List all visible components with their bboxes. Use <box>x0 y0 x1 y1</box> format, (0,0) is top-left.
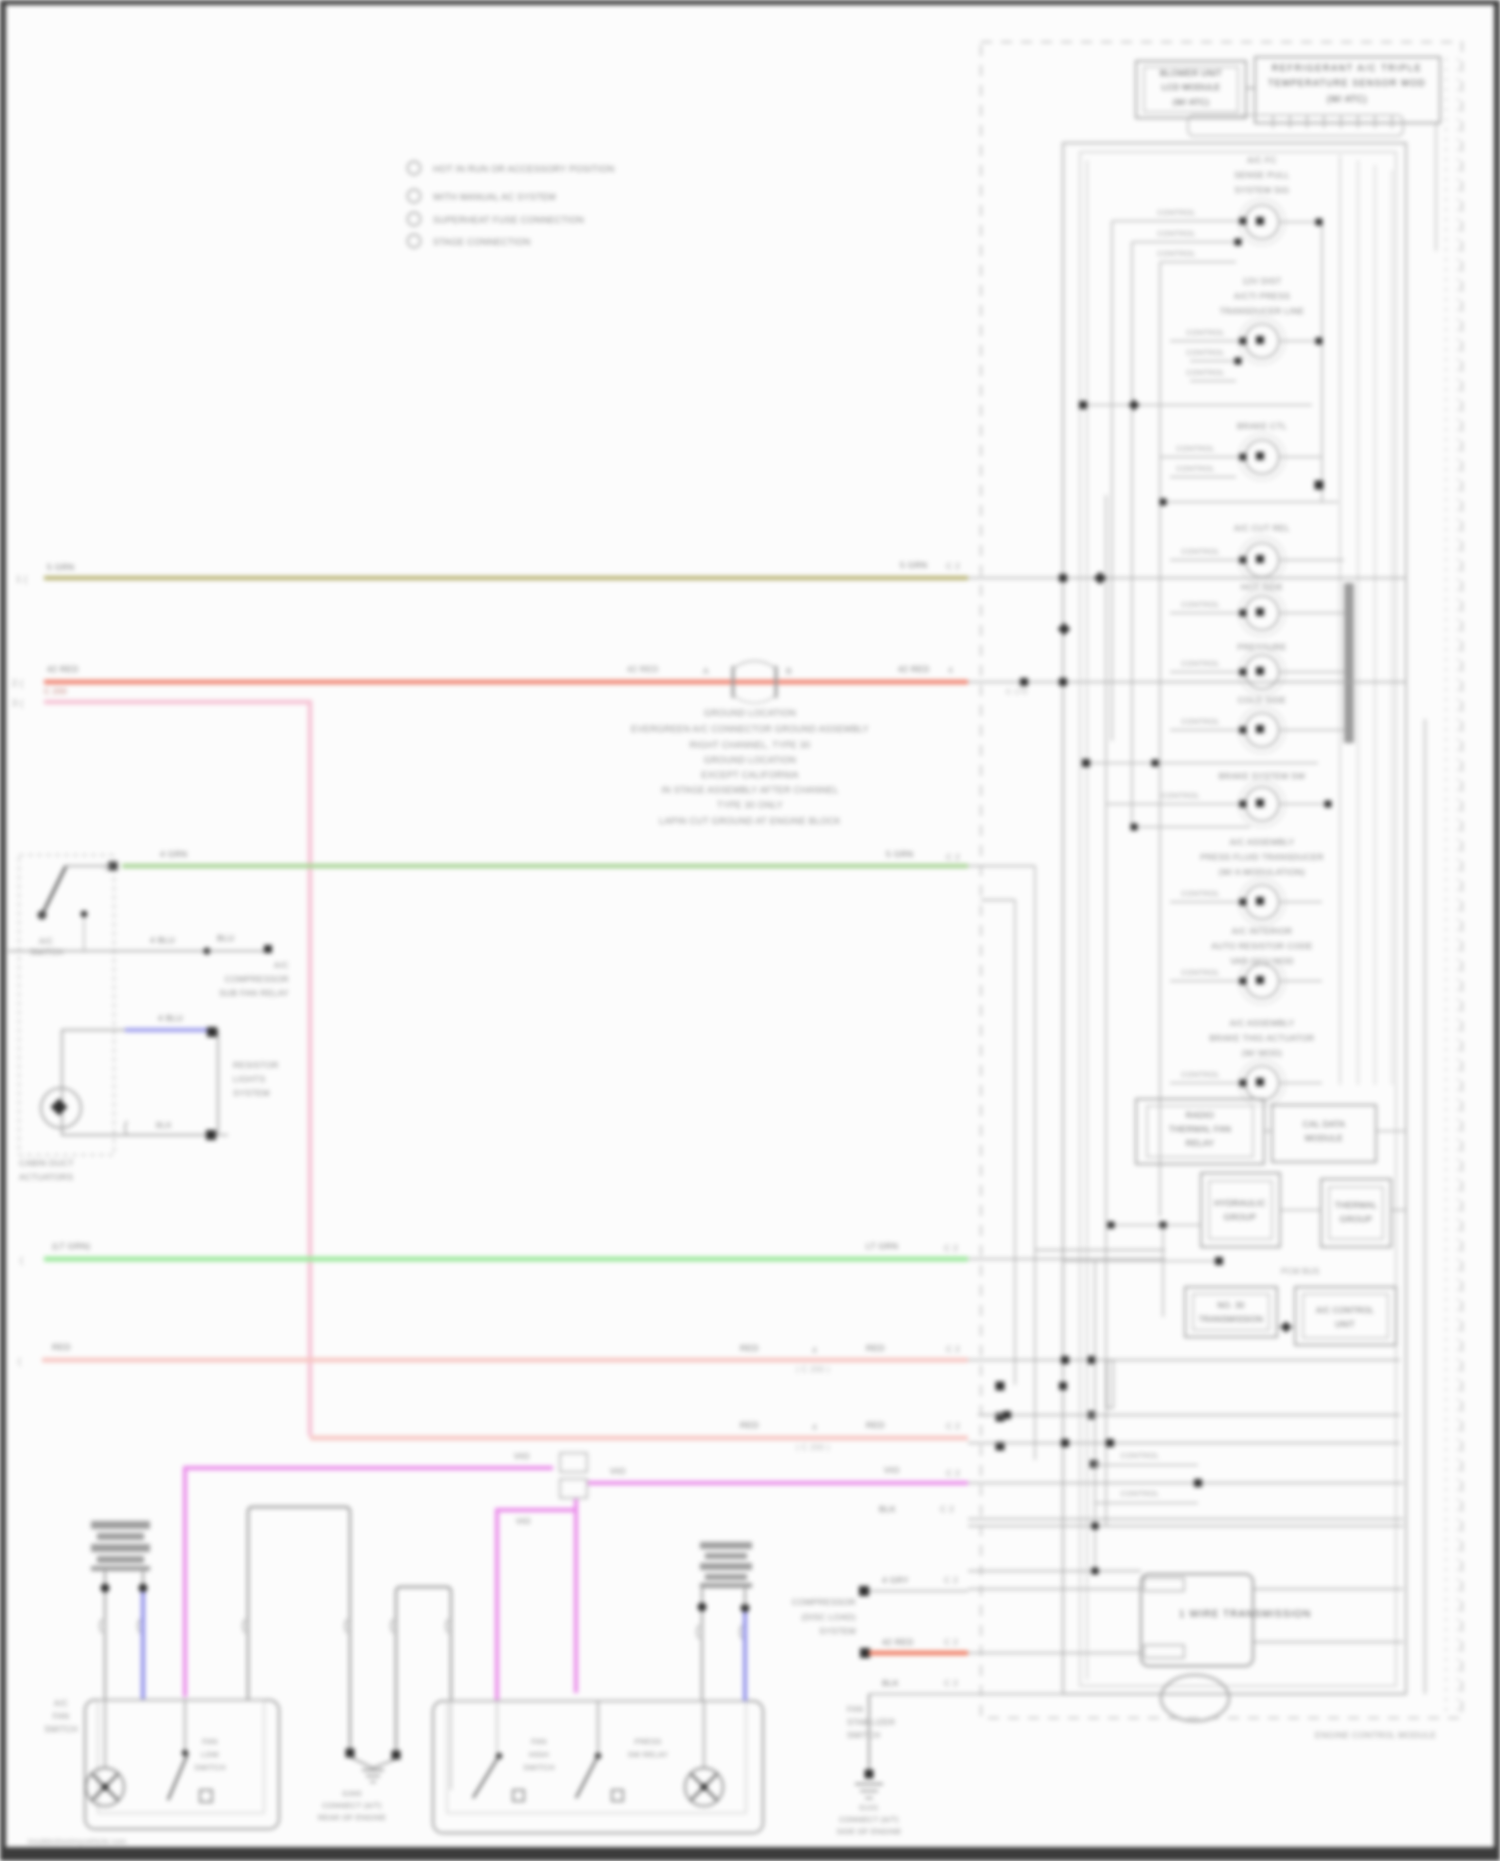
svg-text:2 (: 2 ( <box>12 678 23 688</box>
svg-text:PRESSURE: PRESSURE <box>1237 642 1286 652</box>
svg-text:RIGHT CHANNEL, TYPE 30: RIGHT CHANNEL, TYPE 30 <box>690 740 811 750</box>
svg-text:SWITCH: SWITCH <box>194 1763 225 1772</box>
svg-text:CONTROL: CONTROL <box>1157 249 1196 258</box>
svg-text:4: 4 <box>948 665 953 675</box>
svg-text:PRESS FLUID TRANSDUCER: PRESS FLUID TRANSDUCER <box>1200 852 1324 862</box>
svg-text:SWITCH: SWITCH <box>523 1763 554 1772</box>
svg-text:SW RELAY: SW RELAY <box>628 1750 669 1759</box>
svg-text:FAN: FAN <box>847 1705 863 1714</box>
svg-text:STABILIZER: STABILIZER <box>847 1718 895 1727</box>
svg-text:FAN: FAN <box>202 1737 218 1746</box>
svg-text:REFRIGERANT A/C TRIPLE: REFRIGERANT A/C TRIPLE <box>1272 63 1422 73</box>
svg-text:CONTROL: CONTROL <box>1181 547 1220 556</box>
svg-text:CONTROL: CONTROL <box>1176 444 1215 453</box>
svg-text:A: A <box>703 666 709 676</box>
svg-text:BLK: BLK <box>879 1504 896 1514</box>
svg-text:A/C: A/C <box>274 960 289 970</box>
svg-text:RED: RED <box>740 1343 759 1353</box>
svg-text:C 200: C 200 <box>44 687 67 696</box>
svg-text:(W/ A MODULATION): (W/ A MODULATION) <box>1219 867 1306 877</box>
svg-text:42 RED: 42 RED <box>882 1637 914 1647</box>
svg-text:RELAY: RELAY <box>1186 1138 1215 1148</box>
svg-text:CONTROL: CONTROL <box>1181 600 1220 609</box>
svg-text:LAPIN CUT GROUND AT ENGINE BLO: LAPIN CUT GROUND AT ENGINE BLOCK <box>659 816 841 826</box>
svg-text:BRAKE SYSTEM SW: BRAKE SYSTEM SW <box>1219 771 1306 781</box>
svg-text:C 2: C 2 <box>940 1504 954 1514</box>
svg-text:5 GRN: 5 GRN <box>47 562 74 572</box>
svg-text:4: 4 <box>812 1345 817 1355</box>
svg-text:CONTROL: CONTROL <box>1161 791 1200 800</box>
svg-text:C 2: C 2 <box>944 1575 958 1585</box>
svg-text:RADIO: RADIO <box>1186 1110 1215 1120</box>
svg-text:SIDE OF ENGINE: SIDE OF ENGINE <box>836 1827 901 1836</box>
svg-text:RESISTOR: RESISTOR <box>233 1060 279 1070</box>
svg-text:CONTROL: CONTROL <box>1176 464 1215 473</box>
svg-text:UNIT: UNIT <box>1335 1320 1355 1329</box>
svg-text:G101: G101 <box>859 1803 879 1812</box>
svg-text:GROUND LOCATION: GROUND LOCATION <box>704 755 796 765</box>
svg-text:TYPE 30 ONLY: TYPE 30 ONLY <box>717 800 783 810</box>
svg-text:BRAKE THIG ACTUATOR: BRAKE THIG ACTUATOR <box>1210 1033 1315 1043</box>
svg-text:A/C INTERIOR: A/C INTERIOR <box>1232 926 1293 936</box>
svg-text:(DISC LOAD): (DISC LOAD) <box>801 1612 856 1622</box>
svg-text:RED: RED <box>740 1420 759 1430</box>
svg-text:42 RED: 42 RED <box>627 664 659 674</box>
svg-text:C 2: C 2 <box>946 852 960 862</box>
svg-text:SWITCH: SWITCH <box>847 1731 880 1740</box>
svg-text:C 2: C 2 <box>944 1637 958 1647</box>
svg-text:A/C ASSEMBLY: A/C ASSEMBLY <box>1230 1018 1295 1028</box>
svg-text:VIO: VIO <box>516 1517 531 1526</box>
svg-text:A/C: A/C <box>39 937 53 946</box>
svg-text:CAL DATA: CAL DATA <box>1303 1119 1345 1129</box>
svg-text:RED: RED <box>866 1343 885 1353</box>
svg-text:LT GRN: LT GRN <box>866 1241 898 1251</box>
svg-text:CONTROL: CONTROL <box>1186 348 1225 357</box>
svg-text:CONTROL: CONTROL <box>1186 368 1225 377</box>
svg-text:CONTROL: CONTROL <box>1181 889 1220 898</box>
svg-text:ACTUATORS: ACTUATORS <box>19 1172 73 1182</box>
svg-text:C 2: C 2 <box>946 1344 960 1354</box>
svg-text:4 BLU: 4 BLU <box>158 1013 183 1023</box>
svg-text:4 BLU: 4 BLU <box>150 935 175 945</box>
svg-text:COMPRESSOR: COMPRESSOR <box>792 1597 856 1607</box>
svg-text:C 2: C 2 <box>944 1243 958 1253</box>
svg-text:( C 200 ): ( C 200 ) <box>796 1365 830 1374</box>
svg-text:CONTROL: CONTROL <box>1121 1489 1160 1498</box>
svg-text:TRANSDUCER LINE: TRANSDUCER LINE <box>1220 306 1305 316</box>
svg-text:(W/ ATC): (W/ ATC) <box>1327 94 1367 104</box>
svg-text:RED: RED <box>52 1342 71 1352</box>
svg-text:42 RED: 42 RED <box>47 664 79 674</box>
svg-text:SYSTEM: SYSTEM <box>233 1088 270 1098</box>
svg-text:HIGH: HIGH <box>529 1750 549 1759</box>
svg-text:C 2: C 2 <box>944 1678 958 1688</box>
svg-text:PCM BUS: PCM BUS <box>1281 1267 1320 1276</box>
svg-text:ENGINE CONTROL MODULE: ENGINE CONTROL MODULE <box>1315 1730 1436 1740</box>
svg-text:CONTROL: CONTROL <box>1181 1070 1220 1079</box>
svg-text:C 2: C 2 <box>946 1421 960 1431</box>
svg-text:EVERGREEN A/C CONNECTOR GROUND: EVERGREEN A/C CONNECTOR GROUND ASSEMBLY <box>631 724 869 734</box>
svg-text:VIO: VIO <box>884 1465 900 1475</box>
svg-text:CONTROL: CONTROL <box>1181 659 1220 668</box>
svg-text:GROUP: GROUP <box>1224 1212 1257 1222</box>
svg-text:BLOWER UNIT: BLOWER UNIT <box>1160 68 1222 78</box>
svg-text:FAN: FAN <box>53 1712 69 1721</box>
svg-text:SYSTEM: SYSTEM <box>819 1626 856 1636</box>
svg-text:AUTO RESISTOR CODE: AUTO RESISTOR CODE <box>1211 941 1312 951</box>
svg-text:BLK: BLK <box>882 1678 899 1688</box>
svg-text:(W/ ATC): (W/ ATC) <box>1173 97 1210 107</box>
svg-text:CONTROL: CONTROL <box>1157 229 1196 238</box>
svg-text:CABIN DUCT: CABIN DUCT <box>19 1158 74 1168</box>
svg-text:NO. 30: NO. 30 <box>1217 1301 1244 1310</box>
svg-text:A/C: A/C <box>54 1699 68 1708</box>
svg-text:REAR OF ENGINE: REAR OF ENGINE <box>318 1813 386 1822</box>
svg-text:C 175: C 175 <box>1006 687 1028 696</box>
svg-text:IN STAGE ASSEMBLY AFTER CHANNE: IN STAGE ASSEMBLY AFTER CHANNEL <box>661 785 838 795</box>
svg-text:BLK: BLK <box>156 1121 172 1130</box>
svg-text:C 2: C 2 <box>946 1468 960 1478</box>
svg-text:RED: RED <box>866 1420 885 1430</box>
svg-text:B: B <box>786 666 792 676</box>
svg-text:LIGHTS: LIGHTS <box>233 1074 266 1084</box>
svg-text:THERMAL FAN: THERMAL FAN <box>1169 1124 1232 1134</box>
svg-text:(: ( <box>20 1255 23 1265</box>
svg-text:C 2: C 2 <box>946 561 960 571</box>
svg-text:(: ( <box>104 862 107 872</box>
svg-text:CONTROL: CONTROL <box>1181 968 1220 977</box>
svg-text:A/C FC: A/C FC <box>1247 155 1277 165</box>
svg-text:1 WIRE TRANSMISSION: 1 WIRE TRANSMISSION <box>1179 1609 1311 1620</box>
svg-text:A/CTI PRESS: A/CTI PRESS <box>1234 291 1290 301</box>
svg-text:SUPERHEAT FUSE CONNECTION: SUPERHEAT FUSE CONNECTION <box>433 215 584 225</box>
svg-text:STAGE CONNECTION: STAGE CONNECTION <box>433 237 531 247</box>
svg-text:FAN: FAN <box>531 1737 547 1746</box>
svg-text:A/C ASSEMBLY: A/C ASSEMBLY <box>1230 837 1295 847</box>
svg-text:TRANSMISSION: TRANSMISSION <box>1199 1315 1264 1324</box>
svg-text:EXCEPT CALIFORNIA: EXCEPT CALIFORNIA <box>701 770 798 780</box>
svg-text:1 (: 1 ( <box>16 574 27 584</box>
svg-text:G300: G300 <box>342 1789 362 1798</box>
svg-text:5 GRN: 5 GRN <box>886 849 913 859</box>
svg-text:CONTROL: CONTROL <box>1121 1451 1160 1460</box>
svg-text:4 GRY: 4 GRY <box>882 1575 909 1585</box>
svg-text:4: 4 <box>812 1422 817 1432</box>
svg-text:A/C CONTROL: A/C CONTROL <box>1316 1306 1374 1315</box>
svg-text:(LT GRN): (LT GRN) <box>52 1241 90 1251</box>
svg-text:CONTROL: CONTROL <box>1186 328 1225 337</box>
svg-text:GROUP: GROUP <box>1340 1214 1373 1224</box>
svg-text:3 (: 3 ( <box>12 698 23 708</box>
svg-text:COMPRESSOR: COMPRESSOR <box>225 974 289 984</box>
svg-text:HOT IN RUN OR ACCESSORY POSITI: HOT IN RUN OR ACCESSORY POSITION <box>433 164 615 174</box>
svg-text:PRESS: PRESS <box>635 1737 662 1746</box>
svg-text:CONNECT (A/T): CONNECT (A/T) <box>322 1801 382 1810</box>
svg-text:VIO: VIO <box>514 1451 530 1461</box>
svg-text:COLD SIDE: COLD SIDE <box>1238 695 1287 705</box>
svg-text:SYSTEM SIG: SYSTEM SIG <box>1235 185 1290 195</box>
svg-text:SUB FAN RELAY: SUB FAN RELAY <box>219 988 289 998</box>
svg-text:( C 200 ): ( C 200 ) <box>796 1443 830 1452</box>
svg-text:BLU: BLU <box>217 933 234 943</box>
svg-text:SENSE PULL: SENSE PULL <box>1234 170 1289 180</box>
svg-text:LOW: LOW <box>201 1750 220 1759</box>
svg-text:VIO: VIO <box>610 1466 626 1476</box>
svg-text:CONTROL: CONTROL <box>1181 717 1220 726</box>
svg-text:WITH MANUAL AC SYSTEM: WITH MANUAL AC SYSTEM <box>433 192 556 202</box>
svg-text:LCD MODULE: LCD MODULE <box>1162 82 1221 92</box>
svg-text:(W/ MOD): (W/ MOD) <box>1242 1048 1283 1058</box>
svg-text:SWITCH: SWITCH <box>30 948 63 957</box>
svg-text:4 GRN: 4 GRN <box>160 849 187 859</box>
svg-text:THERMAL: THERMAL <box>1335 1200 1378 1210</box>
svg-text:TEMPERATURE SENSOR MOD: TEMPERATURE SENSOR MOD <box>1268 78 1426 88</box>
svg-text:CONNECT (A/T): CONNECT (A/T) <box>839 1815 899 1824</box>
svg-text:CONTROL: CONTROL <box>1157 208 1196 217</box>
svg-text:5 GRN: 5 GRN <box>900 560 927 570</box>
svg-text:BRAKE CTL: BRAKE CTL <box>1237 421 1287 431</box>
svg-text:42 RED: 42 RED <box>898 664 930 674</box>
svg-text:troubleshootmyvehicle.com: troubleshootmyvehicle.com <box>28 1837 126 1846</box>
svg-text:GROUND LOCATION: GROUND LOCATION <box>704 708 796 718</box>
svg-text:HYDRAULIC: HYDRAULIC <box>1214 1198 1266 1208</box>
svg-text:MODULE: MODULE <box>1305 1133 1343 1143</box>
svg-text:A/C CUT REL: A/C CUT REL <box>1234 523 1290 533</box>
svg-text:SWITCH: SWITCH <box>44 1725 77 1734</box>
svg-text:(: ( <box>18 1356 21 1366</box>
svg-text:12V DIST: 12V DIST <box>1242 276 1281 286</box>
